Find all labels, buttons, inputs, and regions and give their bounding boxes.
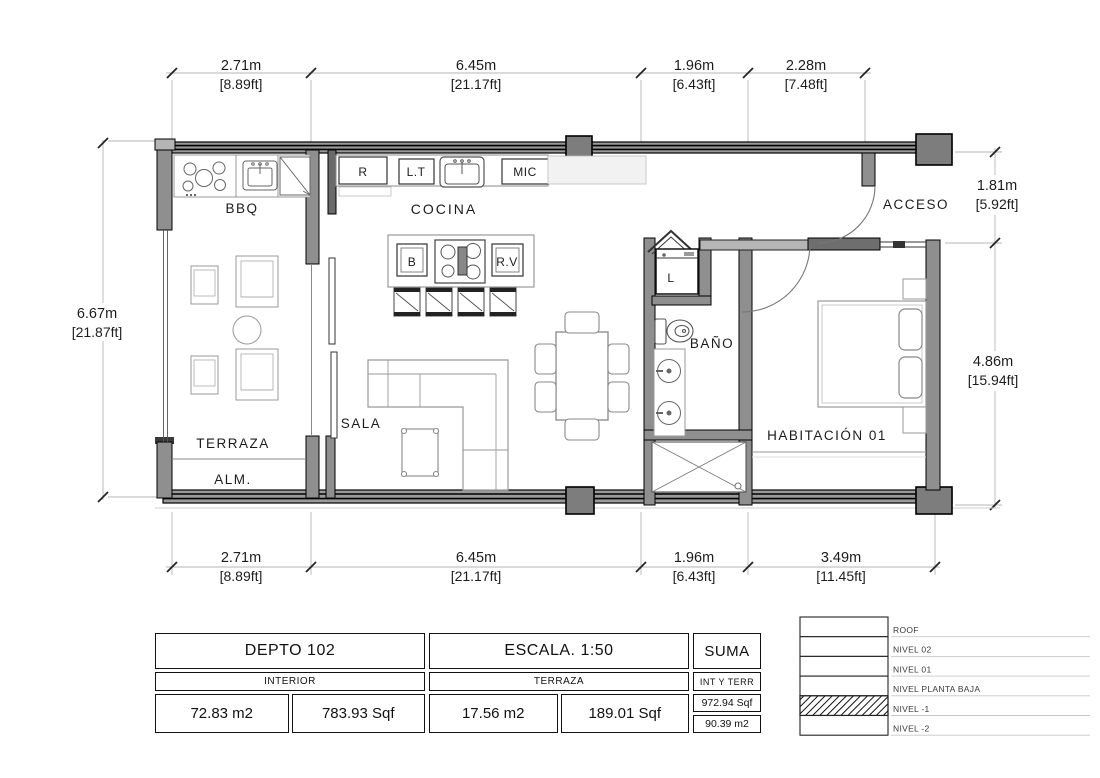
nightstand bbox=[903, 279, 926, 299]
suma-total-m2: 90.39 m2 bbox=[693, 715, 761, 733]
unit-area-sqf: 783.93 Sqf bbox=[292, 694, 426, 733]
label-cocina: COCINA bbox=[411, 201, 477, 217]
dim-left-ft: [21.87ft] bbox=[72, 324, 123, 340]
wall-bedroom-right bbox=[926, 240, 940, 490]
vanity bbox=[654, 349, 685, 436]
level-label-nivel-minus2: NIVEL -2 bbox=[893, 724, 930, 734]
dim-bot-1-m: 2.71m bbox=[221, 550, 261, 566]
terrace-table-icon bbox=[233, 316, 261, 344]
area-table-unit: DEPTO 102 INTERIOR 72.83 m2 783.93 Sqf bbox=[155, 633, 425, 733]
column-bottom-right bbox=[916, 487, 952, 514]
dim-top-4-m: 2.28m bbox=[786, 58, 826, 74]
label-rv: R.V bbox=[496, 255, 518, 269]
wall-left-lower bbox=[157, 442, 172, 498]
kitchen-island: B R.V bbox=[388, 235, 534, 316]
dim-top-2-ft: [21.17ft] bbox=[451, 76, 502, 92]
label-bbq: BBQ bbox=[225, 201, 258, 216]
label-habitacion: HABITACIÓN 01 bbox=[767, 428, 887, 443]
terrace-area-m2: 17.56 m2 bbox=[429, 694, 558, 733]
level-label-nivel-minus1: NIVEL -1 bbox=[893, 704, 930, 714]
dim-top-2-m: 6.45m bbox=[456, 58, 496, 74]
wall-divider-lower bbox=[306, 436, 319, 498]
dim-right-1-ft: [5.92ft] bbox=[976, 196, 1019, 212]
dimension-text-left: 6.67m [21.87ft] bbox=[58, 303, 140, 341]
label-sala: SALA bbox=[341, 416, 382, 431]
unit-area-m2: 72.83 m2 bbox=[155, 694, 289, 733]
level-label-nivel-01: NIVEL 01 bbox=[893, 664, 931, 674]
entry-door-arc bbox=[818, 186, 875, 243]
sliding-door-panel bbox=[329, 258, 335, 344]
unit-title: DEPTO 102 bbox=[155, 633, 425, 669]
kitchen-sink-icon bbox=[440, 157, 484, 187]
dim-top-4-ft: [7.48ft] bbox=[785, 76, 828, 92]
level-highlight-nivel-1 bbox=[800, 696, 888, 716]
bbq-counter bbox=[174, 155, 310, 197]
dim-top-1-ft: [8.89ft] bbox=[220, 76, 263, 92]
level-label-nivel-02: NIVEL 02 bbox=[893, 645, 931, 655]
terrace-area-sqf: 189.01 Sqf bbox=[561, 694, 690, 733]
bedroom: HABITACIÓN 01 bbox=[752, 279, 926, 457]
bar-stools bbox=[394, 288, 516, 316]
dim-right-1-m: 1.81m bbox=[977, 178, 1017, 194]
coffee-table bbox=[402, 429, 439, 477]
label-refrigerator: R bbox=[358, 165, 367, 179]
dim-bot-4-ft: [11.45ft] bbox=[816, 568, 866, 584]
scale-subtitle: TERRAZA bbox=[429, 672, 689, 691]
dim-bot-4-m: 3.49m bbox=[821, 550, 861, 566]
dim-top-1-m: 2.71m bbox=[221, 58, 261, 74]
stove-icon bbox=[435, 240, 485, 283]
label-b: B bbox=[408, 255, 417, 269]
bed-icon bbox=[818, 301, 926, 407]
toilet-icon bbox=[655, 319, 693, 344]
dining-set bbox=[535, 312, 629, 440]
label-microwave: MIC bbox=[513, 165, 537, 179]
level-label-planta-baja: NIVEL PLANTA BAJA bbox=[893, 684, 980, 694]
area-table-suma: SUMA INT Y TERR 972.94 Sqf 90.39 m2 bbox=[693, 633, 761, 733]
label-bano: BAÑO bbox=[690, 336, 734, 351]
wall-left-upper bbox=[157, 150, 172, 230]
unit-subtitle: INTERIOR bbox=[155, 672, 425, 691]
floorplan-sheet: 2.71m [8.89ft] 6.45m [21.17ft] 1.96m [6.… bbox=[0, 0, 1100, 778]
dim-right-2-m: 4.86m bbox=[973, 354, 1013, 370]
wall-entry-stub bbox=[862, 153, 875, 186]
dim-right-2-ft: [15.94ft] bbox=[968, 372, 1019, 388]
sliding-door-panel bbox=[331, 352, 337, 438]
bathroom: BAÑO bbox=[652, 319, 746, 492]
dim-top-3-ft: [6.43ft] bbox=[673, 76, 716, 92]
dim-top-3-m: 1.96m bbox=[674, 58, 714, 74]
label-acceso: ACCESO bbox=[883, 197, 949, 212]
dimension-text-right: 1.81m [5.92ft] 4.86m [15.94ft] bbox=[956, 175, 1030, 391]
level-label-roof: ROOF bbox=[893, 625, 919, 635]
dim-bot-3-m: 1.96m bbox=[674, 550, 714, 566]
suma-total-sqf: 972.94 Sqf bbox=[693, 694, 761, 712]
kitchen-counter: R L.T MIC bbox=[336, 155, 646, 196]
column-bottom-mid bbox=[566, 487, 594, 514]
dim-bot-2-ft: [21.17ft] bbox=[451, 568, 502, 584]
shower-icon bbox=[652, 442, 746, 492]
nightstand bbox=[903, 407, 926, 433]
suma-subtitle: INT Y TERR bbox=[693, 672, 761, 691]
area-table-scale: ESCALA. 1:50 TERRAZA 17.56 m2 189.01 Sqf bbox=[429, 633, 689, 733]
label-terraza: TERRAZA bbox=[196, 436, 270, 451]
column-top-right bbox=[916, 134, 952, 165]
dim-left-m: 6.67m bbox=[77, 306, 117, 322]
suma-title: SUMA bbox=[693, 633, 761, 669]
terrace-furniture bbox=[191, 256, 278, 400]
scale-title: ESCALA. 1:50 bbox=[429, 633, 689, 669]
dim-bot-3-ft: [6.43ft] bbox=[673, 568, 716, 584]
label-lt: L.T bbox=[407, 165, 426, 179]
label-alm: ALM. bbox=[214, 472, 252, 487]
dim-bot-1-ft: [8.89ft] bbox=[220, 568, 263, 584]
label-laundry: L bbox=[667, 271, 674, 285]
dim-bot-2-m: 6.45m bbox=[456, 550, 496, 566]
area-table: DEPTO 102 INTERIOR 72.83 m2 783.93 Sqf E… bbox=[155, 633, 761, 733]
level-diagram: ROOF NIVEL 02 NIVEL 01 NIVEL PLANTA BAJA… bbox=[800, 617, 1090, 735]
